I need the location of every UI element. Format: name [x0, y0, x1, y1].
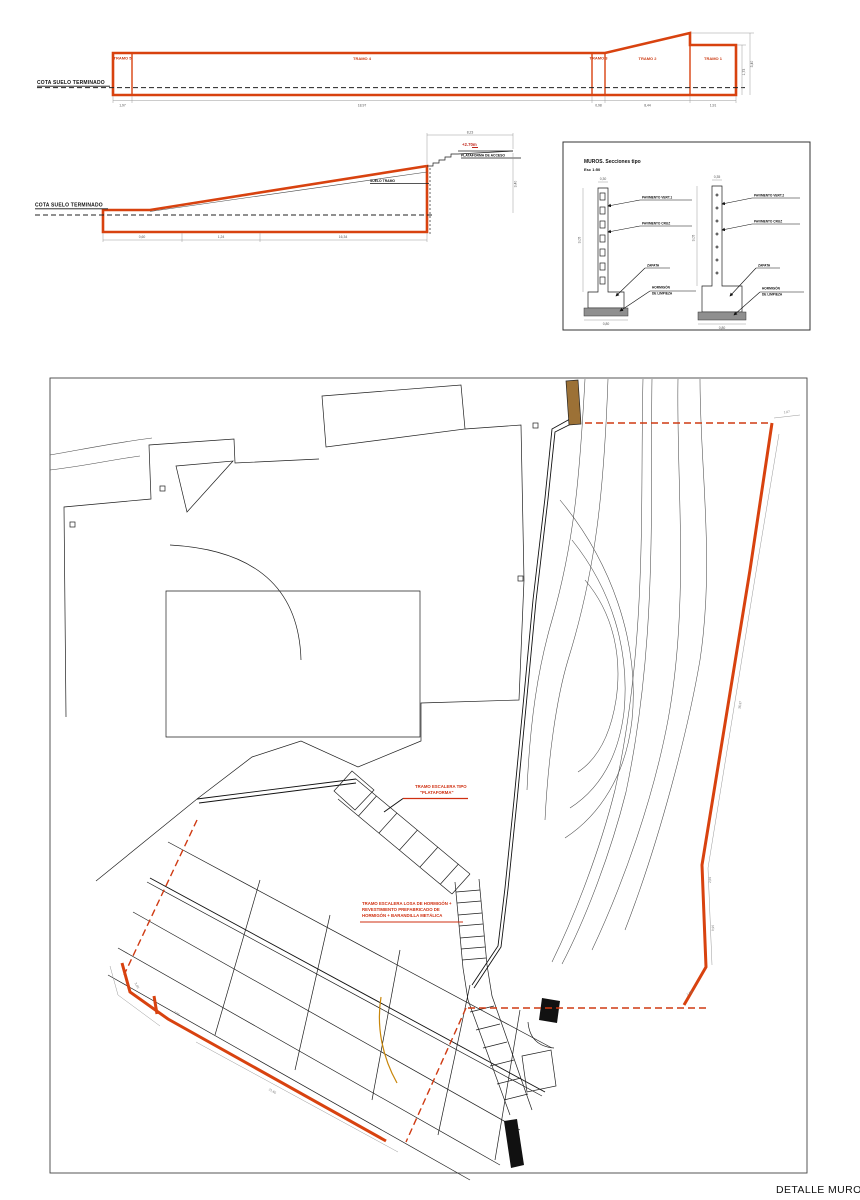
tramo-1-label: TRAMO 1	[704, 56, 723, 61]
tramo-4-label: TRAMO 4	[353, 56, 372, 61]
note-platform-line2: "PLATAFORMA"	[420, 790, 454, 795]
sections-scale: Esc 1:50	[584, 167, 601, 172]
sec2-dim-top: 0,35	[714, 175, 721, 179]
site-plan: 1,07 36,97 2,69 9,95 1,03 3,05 2,09 21,6…	[50, 378, 807, 1180]
sec1-callout-4b: DE LIMPIEZA	[652, 292, 673, 296]
tramo-5-label: TRAMO 5	[114, 56, 133, 61]
plan-frame	[50, 378, 807, 1173]
dim-ramp-right: 3,40	[514, 181, 518, 188]
dim-ramp-b1: 0,60	[139, 235, 146, 239]
sec2-callout-2: PAVIMENTO CRUZ	[754, 220, 782, 224]
cota-label-ramp: COTA SUELO TERMINADO	[35, 203, 103, 209]
sec1-callout-4a: HORMIGÓN	[652, 285, 671, 290]
sec2-callout-1: PAVIMENTO VERT.2	[754, 194, 784, 198]
elevation-long-wall: COTA SUELO TERMINADO TRAMO 5 TRAMO 4 TRA…	[37, 33, 754, 108]
slope-label: SUELO TRAMO	[370, 179, 395, 183]
drawing-sheet: COTA SUELO TERMINADO TRAMO 5 TRAMO 4 TRA…	[0, 0, 860, 1200]
sections-title: MUROS. Secciones tipo	[584, 159, 641, 165]
level-label: +2.70m	[462, 142, 477, 147]
long-wall-dimensions: 1,97 18,97 0,98 8,44 1,91 1,73 3,40	[113, 33, 754, 108]
section-marker-upper	[539, 998, 560, 1023]
note-stair-line1: TRAMO ESCALERA LOSA DE HORMIGÓN +	[362, 901, 452, 906]
sec1-dim-height: 3,05	[578, 237, 582, 244]
dim-wall-lower: 9,95	[711, 925, 715, 932]
earth-strip	[566, 380, 581, 425]
sheet-title: DETALLE MUROS	[776, 1184, 860, 1196]
dim-right-inner: 1,73	[742, 69, 746, 76]
dim-seg3: 0,98	[595, 104, 602, 108]
tramo-3-label: TRAMO 3	[590, 56, 609, 61]
elevation-ramp-wall: COTA SUELO TERMINADO +2.70m PLATAFORMA D…	[35, 131, 521, 243]
note-platform-line1: TRAMO ESCALERA TIPO	[415, 784, 467, 789]
cad-canvas: COTA SUELO TERMINADO TRAMO 5 TRAMO 4 TRA…	[0, 0, 860, 1200]
sec1-callout-1: PAVIMENTO VERT.1	[642, 196, 672, 200]
dim-ramp-b3: 16,34	[339, 235, 348, 239]
tramo-2-label: TRAMO 2	[639, 56, 658, 61]
note-stair-line3: HORMIGÓN + BARANDILLA METÁLICA	[362, 913, 442, 918]
sec1-callout-2: PAVIMENTO CRUZ	[642, 222, 670, 226]
sec1-callout-3: ZAPATA	[647, 264, 660, 268]
ramp-bottom-dimensions: 0,60 1,24 16,34	[103, 233, 427, 242]
dim-seg2: 8,44	[644, 104, 651, 108]
dim-seg4: 18,97	[358, 104, 367, 108]
sec2-callout-4b: DE LIMPIEZA	[762, 293, 783, 297]
dim-ramp-top: 8,23	[467, 131, 474, 135]
sec2-dim-bottom: 0,80	[719, 326, 726, 330]
note-stair-line2: REVESTIMIENTO PREFABRICADO DE	[362, 907, 440, 912]
wall-sections-box: MUROS. Secciones tipo Esc 1:50 0,30 3,05…	[563, 142, 810, 330]
sec2-callout-4a: HORMIGÓN	[762, 286, 781, 291]
sec1-dim-top: 0,30	[600, 177, 607, 181]
sec2-dim-height: 3,05	[692, 235, 696, 242]
ramp-wall-outline	[103, 166, 427, 232]
sec2-callout-3: ZAPATA	[758, 264, 771, 268]
cota-label-top: COTA SUELO TERMINADO	[37, 80, 105, 86]
dim-wall-mid: 2,69	[708, 877, 712, 884]
dim-seg1: 1,91	[710, 104, 717, 108]
platform-label: PLATAFORMA DE ACCESO	[461, 154, 505, 158]
dim-right-outer: 3,40	[750, 61, 754, 68]
dim-ramp-b2: 1,24	[218, 235, 225, 239]
sec1-dim-bottom: 0,80	[603, 322, 610, 326]
dim-seg5: 1,97	[119, 104, 126, 108]
long-wall-outline	[113, 33, 736, 95]
